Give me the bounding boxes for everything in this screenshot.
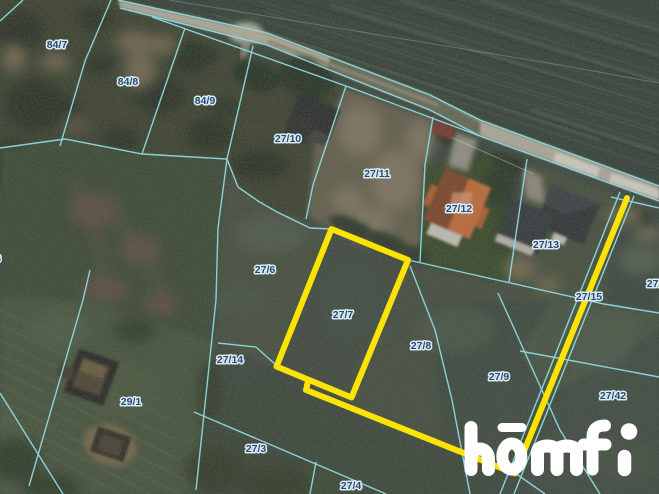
svg-text:27/6: 27/6 <box>255 264 276 276</box>
svg-text:27/11: 27/11 <box>364 168 390 180</box>
svg-text:6: 6 <box>0 253 1 265</box>
svg-text:84/7: 84/7 <box>47 39 68 51</box>
svg-text:27/9: 27/9 <box>489 371 510 383</box>
svg-text:27/7: 27/7 <box>333 309 354 321</box>
svg-text:27/4: 27/4 <box>341 480 362 492</box>
svg-text:27/10: 27/10 <box>275 133 301 145</box>
svg-text:27/4: 27/4 <box>647 278 659 290</box>
svg-text:29/1: 29/1 <box>121 396 142 408</box>
svg-text:27/3: 27/3 <box>246 443 267 455</box>
svg-text:27/15: 27/15 <box>576 291 602 303</box>
svg-text:84/9: 84/9 <box>195 95 216 107</box>
svg-text:27/12: 27/12 <box>446 203 472 215</box>
svg-text:27/14: 27/14 <box>217 354 243 366</box>
svg-text:27/13: 27/13 <box>533 239 559 251</box>
svg-text:84/8: 84/8 <box>118 76 139 88</box>
svg-text:27/42: 27/42 <box>600 390 626 402</box>
svg-text:27/8: 27/8 <box>411 340 432 352</box>
